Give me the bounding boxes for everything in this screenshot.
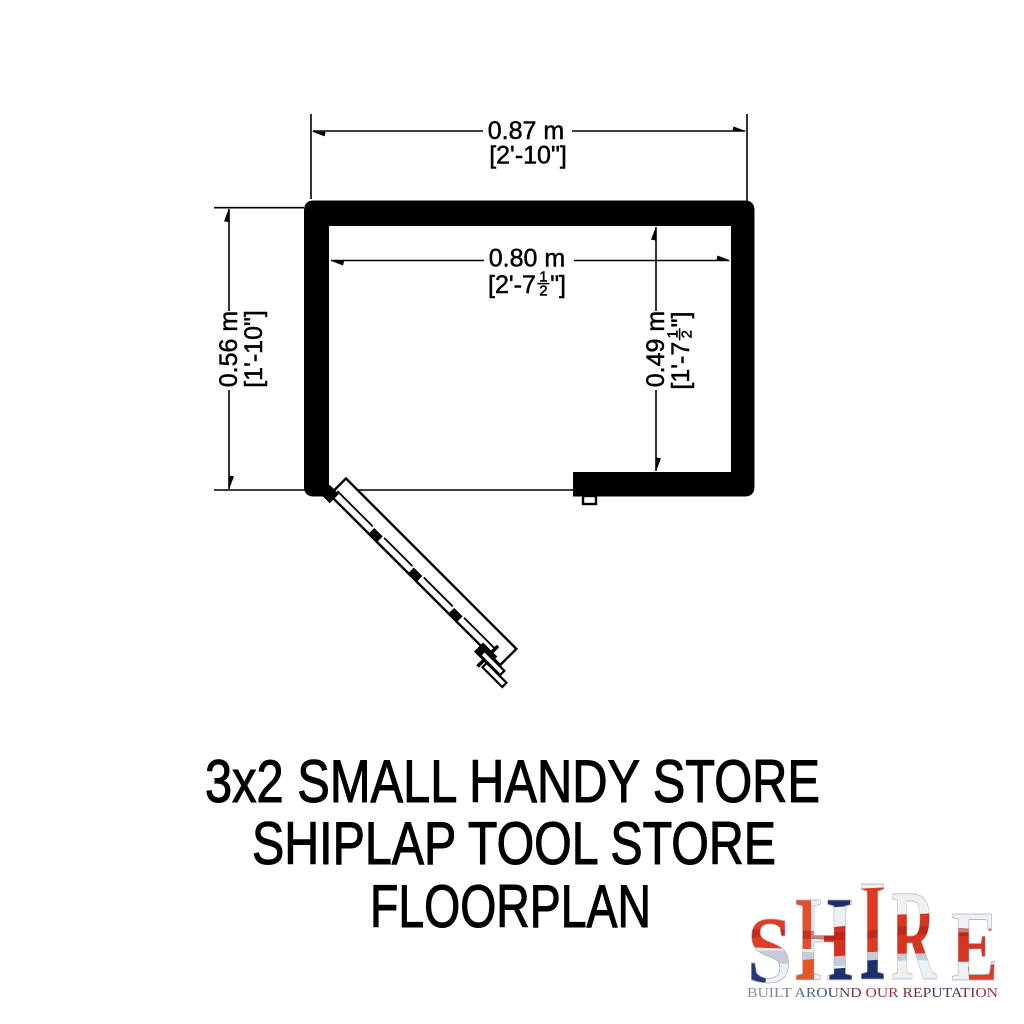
svg-text:[2'-7: [2'-7 <box>488 271 536 299</box>
svg-text:2: 2 <box>679 330 696 338</box>
svg-text:[2'-10"]: [2'-10"] <box>489 142 567 170</box>
svg-text:0.56 m: 0.56 m <box>215 311 243 387</box>
svg-text:"]: "] <box>667 312 695 328</box>
svg-text:0.49 m: 0.49 m <box>642 311 670 387</box>
svg-text:[1'-10"]: [1'-10"] <box>240 310 268 388</box>
svg-text:2: 2 <box>539 283 547 300</box>
svg-text:BUILT AROUND OUR REPUTATION: BUILT AROUND OUR REPUTATION <box>747 985 998 1000</box>
svg-text:FLOORPLAN: FLOORPLAN <box>370 873 651 940</box>
svg-text:0.80 m: 0.80 m <box>489 245 565 273</box>
svg-text:[1'-7: [1'-7 <box>667 342 695 390</box>
svg-text:3x2 SMALL HANDY STORE: 3x2 SMALL HANDY STORE <box>205 748 820 815</box>
svg-text:SHIPLAP TOOL STORE: SHIPLAP TOOL STORE <box>252 810 776 877</box>
svg-text:"]: "] <box>550 271 566 299</box>
